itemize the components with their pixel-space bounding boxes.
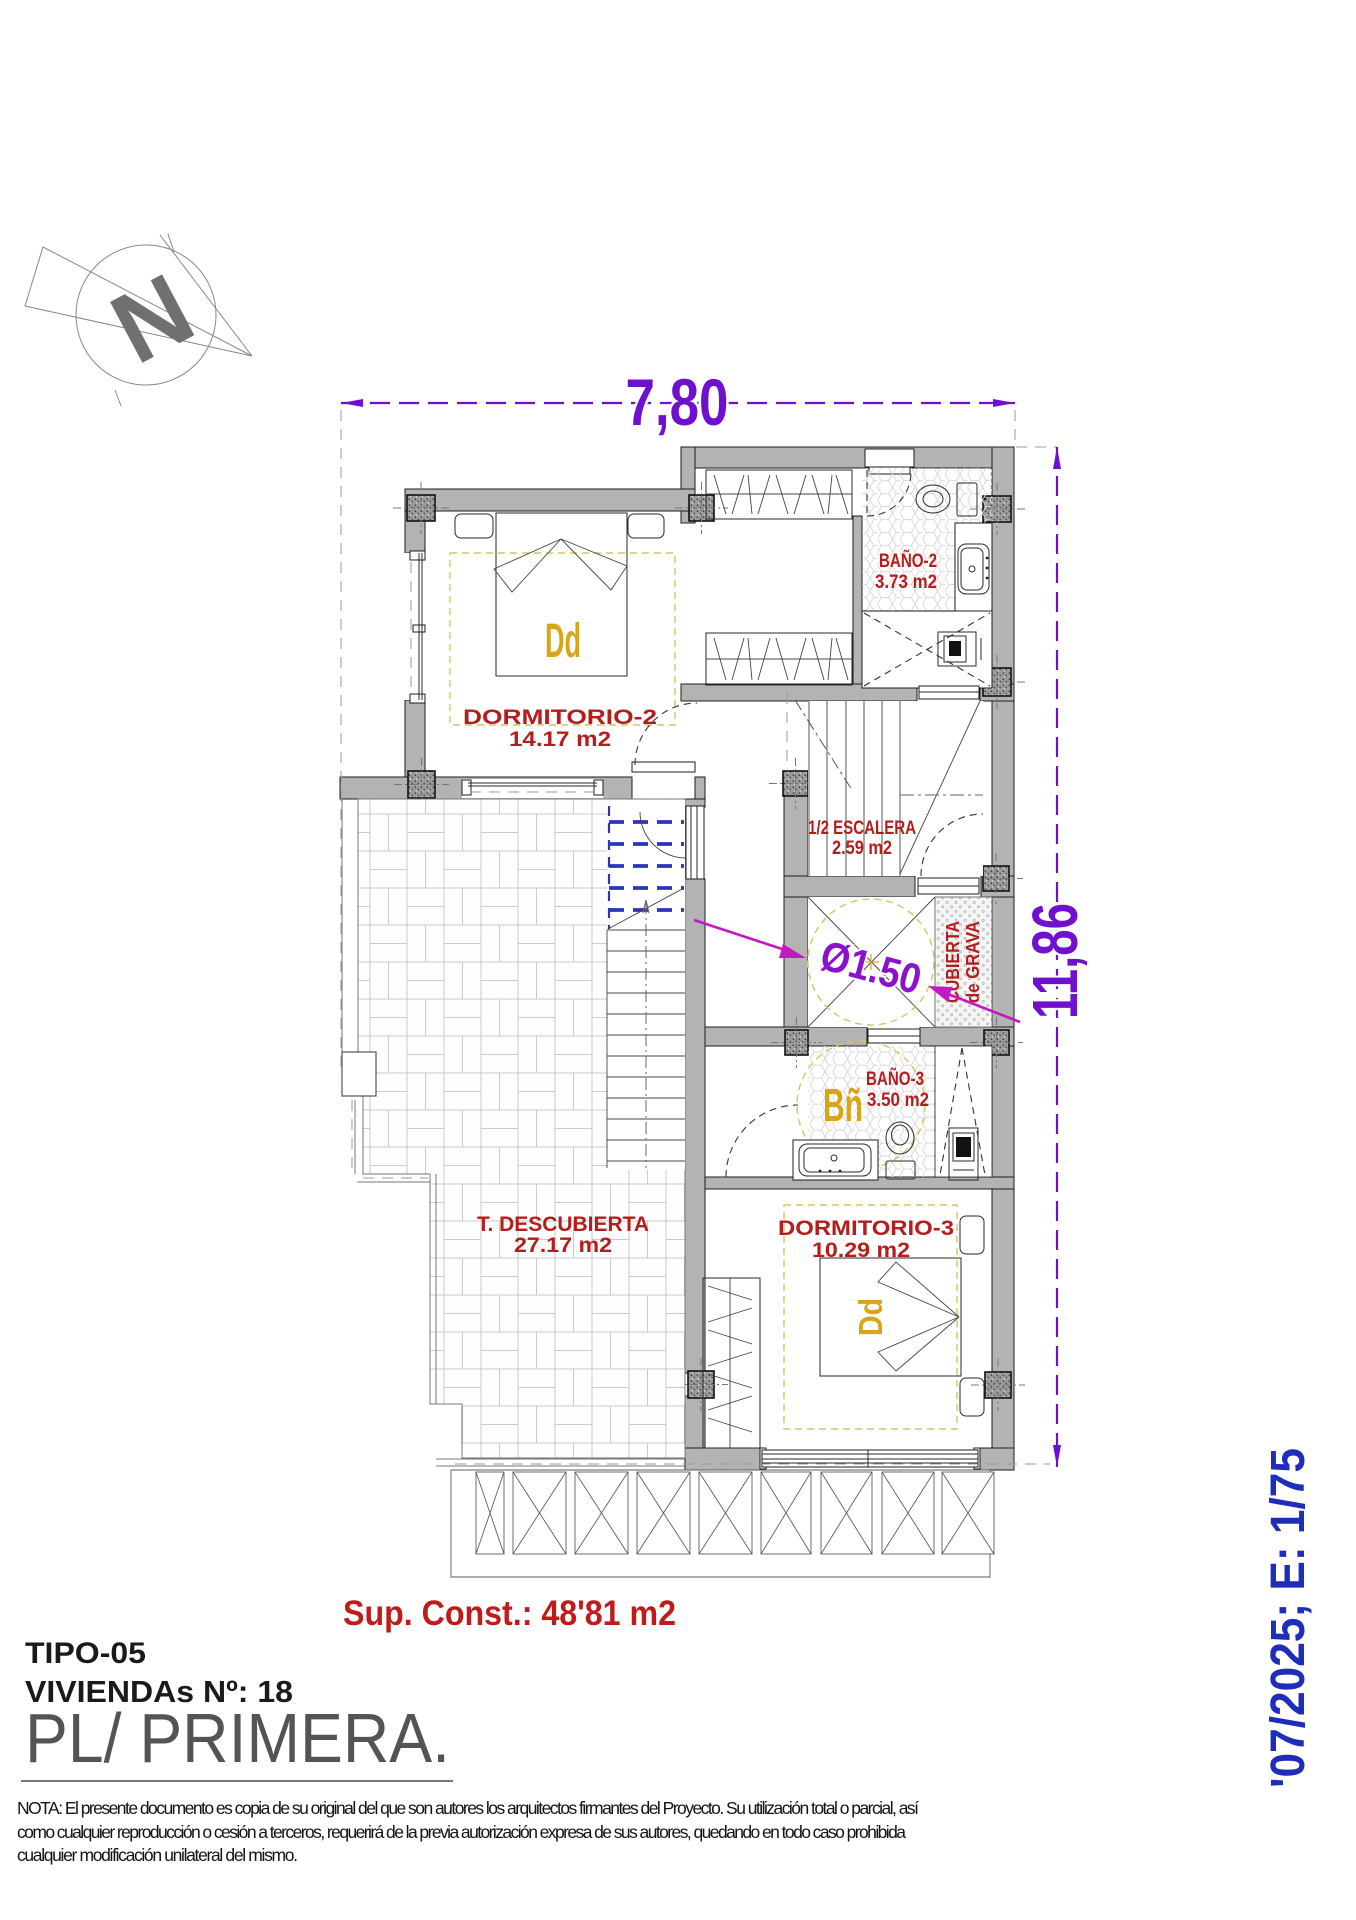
svg-text:11,86: 11,86	[1019, 903, 1091, 1019]
svg-text:BAÑO-3: BAÑO-3	[866, 1068, 924, 1090]
svg-text:7,80: 7,80	[626, 365, 729, 439]
svg-text:Sup. Const.: 48'81 m2: Sup. Const.: 48'81 m2	[343, 1594, 676, 1633]
svg-text:Bñ: Bñ	[823, 1079, 863, 1131]
svg-text:como cualquier reproducción o: como cualquier reproducción o cesión a t…	[17, 1822, 906, 1842]
svg-text:'07/2025; E: 1/75: '07/2025; E: 1/75	[1262, 1448, 1315, 1788]
svg-text:Dd: Dd	[852, 1298, 889, 1336]
svg-text:2.59 m2: 2.59 m2	[832, 838, 892, 859]
svg-text:PL/ PRIMERA.: PL/ PRIMERA.	[25, 1699, 450, 1777]
svg-text:de GRAVA: de GRAVA	[963, 921, 983, 1003]
svg-text:BAÑO-2: BAÑO-2	[879, 550, 937, 572]
svg-text:3.50 m2: 3.50 m2	[867, 1090, 929, 1111]
svg-text:14.17 m2: 14.17 m2	[509, 728, 611, 751]
svg-text:DORMITORIO-3: DORMITORIO-3	[778, 1217, 954, 1240]
svg-text:1/2 ESCALERA: 1/2 ESCALERA	[808, 818, 916, 839]
svg-text:T. DESCUBIERTA: T. DESCUBIERTA	[477, 1213, 649, 1236]
svg-text:Dd: Dd	[545, 615, 581, 668]
svg-text:3.73 m2: 3.73 m2	[875, 572, 937, 593]
svg-text:DORMITORIO-2: DORMITORIO-2	[463, 706, 657, 729]
svg-text:cualquier modificación unilate: cualquier modificación unilateral del mi…	[17, 1845, 298, 1865]
svg-text:NOTA: El presente documento es: NOTA: El presente documento es copia de …	[17, 1798, 919, 1818]
svg-text:10.29 m2: 10.29 m2	[812, 1239, 910, 1262]
svg-text:27.17 m2: 27.17 m2	[514, 1234, 612, 1257]
svg-text:N: N	[94, 252, 210, 385]
svg-text:TIPO-05: TIPO-05	[25, 1637, 146, 1670]
